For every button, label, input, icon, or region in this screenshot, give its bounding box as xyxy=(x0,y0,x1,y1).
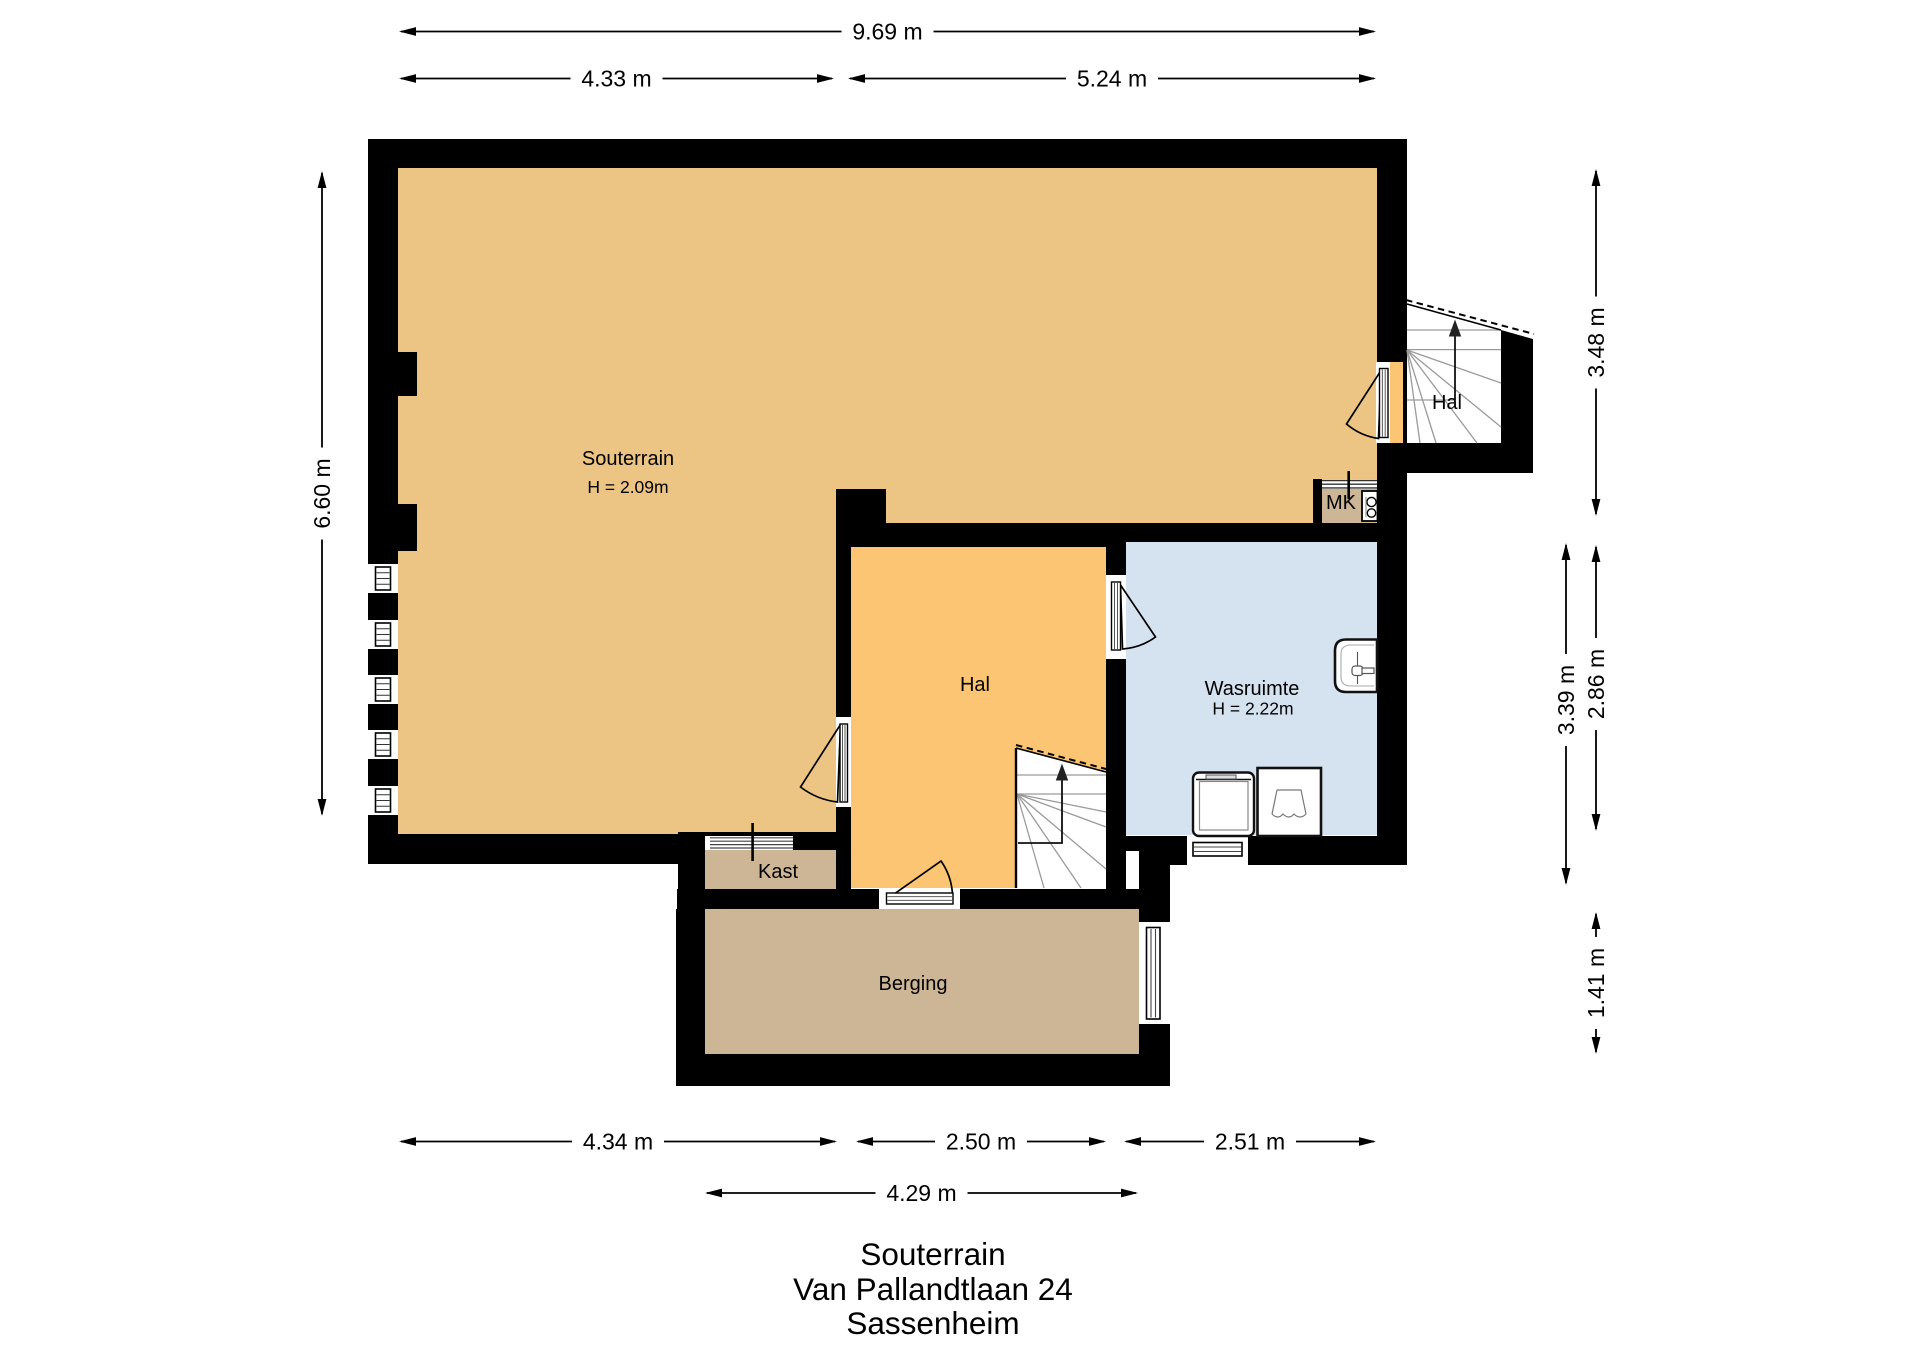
svg-text:1.41 m: 1.41 m xyxy=(1583,948,1609,1018)
svg-text:Sassenheim: Sassenheim xyxy=(846,1305,1019,1341)
svg-text:3.39 m: 3.39 m xyxy=(1553,665,1579,735)
svg-text:4.29 m: 4.29 m xyxy=(886,1180,956,1206)
svg-text:Wasruimte: Wasruimte xyxy=(1205,678,1300,700)
svg-text:Van Pallandtlaan 24: Van Pallandtlaan 24 xyxy=(793,1271,1073,1307)
svg-text:2.50 m: 2.50 m xyxy=(946,1129,1016,1155)
svg-text:9.69 m: 9.69 m xyxy=(852,19,922,45)
svg-text:Kast: Kast xyxy=(758,861,798,883)
svg-text:6.60 m: 6.60 m xyxy=(309,458,335,528)
svg-text:5.24 m: 5.24 m xyxy=(1077,66,1147,92)
svg-text:4.33 m: 4.33 m xyxy=(581,66,651,92)
svg-text:Berging: Berging xyxy=(879,973,948,995)
svg-text:2.86 m: 2.86 m xyxy=(1583,649,1609,719)
svg-text:2.51 m: 2.51 m xyxy=(1215,1129,1285,1155)
svg-text:H = 2.22m: H = 2.22m xyxy=(1212,699,1293,719)
svg-text:Souterrain: Souterrain xyxy=(582,448,674,470)
svg-text:3.48 m: 3.48 m xyxy=(1583,307,1609,377)
svg-text:Hal: Hal xyxy=(1432,392,1462,414)
svg-text:Souterrain: Souterrain xyxy=(860,1236,1005,1272)
svg-text:H = 2.09m: H = 2.09m xyxy=(587,477,668,497)
svg-text:MK: MK xyxy=(1326,492,1357,514)
svg-text:Hal: Hal xyxy=(960,674,990,696)
svg-text:4.34 m: 4.34 m xyxy=(583,1129,653,1155)
